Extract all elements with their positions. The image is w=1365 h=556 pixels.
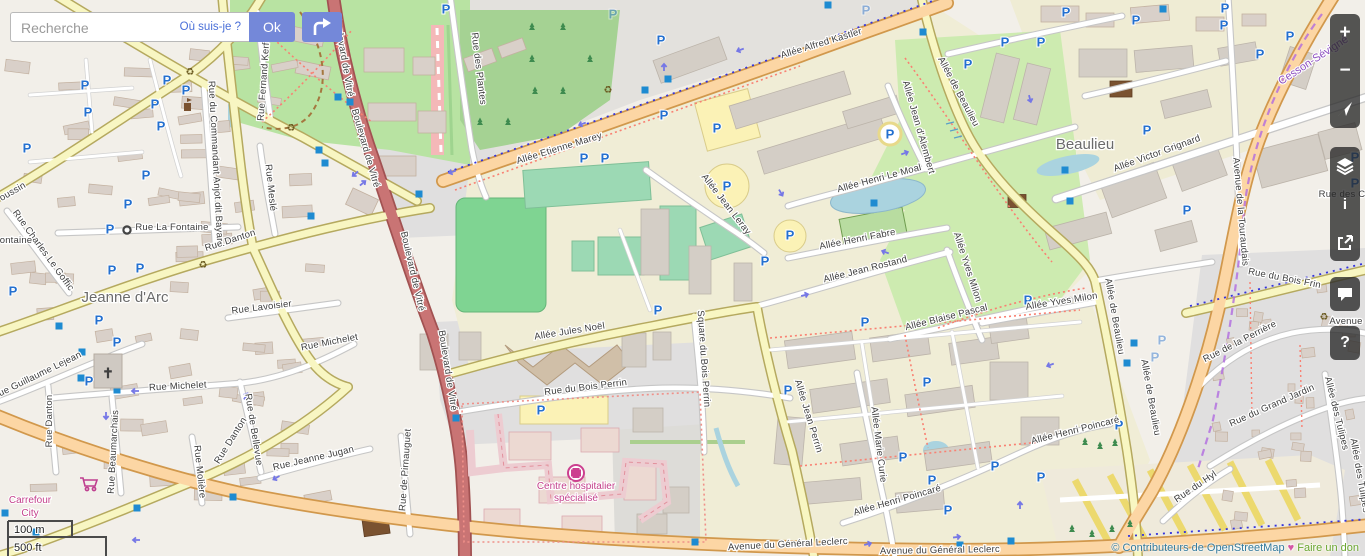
map-tools: i: [1330, 147, 1360, 261]
parking-icon: P: [136, 261, 145, 276]
parking-icon: P: [9, 284, 18, 299]
parking-icon: P: [182, 83, 191, 98]
parking-icon-faded: P: [1158, 333, 1167, 348]
place-label: Jeanne d'Arc: [81, 289, 169, 306]
parking-icon: P: [964, 57, 973, 72]
parking-icon: P: [84, 105, 93, 120]
search-submit-button[interactable]: Ok: [249, 12, 295, 42]
parking-icon: P: [886, 127, 895, 142]
parking-icon: P: [537, 403, 546, 418]
blue-square-marker: [453, 415, 460, 422]
blue-square-marker: [347, 99, 354, 106]
blue-square-marker: [1160, 6, 1167, 13]
poi-label: Carrefour: [9, 495, 52, 506]
parking-icon: P: [1143, 123, 1152, 138]
search-input[interactable]: [19, 13, 173, 43]
parking-icon: P: [1220, 18, 1229, 33]
recycling-icon: ♻: [199, 260, 208, 271]
recycling-icon: ♻: [186, 67, 195, 78]
map-key-button[interactable]: i: [1330, 185, 1360, 223]
poi-label: spécialisé: [554, 493, 598, 504]
parking-icon: P: [106, 222, 115, 237]
place-label: Beaulieu: [1056, 136, 1114, 153]
query-control: ?: [1330, 326, 1360, 360]
blue-square-marker: [1124, 360, 1131, 367]
directions-button[interactable]: [302, 12, 342, 42]
parking-icon: P: [23, 141, 32, 156]
parking-icon: P: [163, 73, 172, 88]
parking-icon: P: [786, 228, 795, 243]
note-control: [1330, 277, 1360, 311]
parking-icon: P: [157, 119, 166, 134]
parking-icon: P: [151, 97, 160, 112]
parking-icon: P: [1062, 5, 1071, 20]
parking-icon: P: [108, 263, 117, 278]
street-label: Avenue du Général Leclerc: [880, 544, 1000, 556]
parking-icon: P: [991, 459, 1000, 474]
recycling-icon: ♻: [287, 123, 296, 134]
parking-icon: P: [657, 33, 666, 48]
blue-square-marker: [642, 87, 649, 94]
blue-square-marker: [56, 323, 63, 330]
note-bubble-icon: [1337, 287, 1353, 302]
parking-icon: P: [124, 197, 133, 212]
parking-icon: P: [660, 108, 669, 123]
parking-icon: P: [944, 503, 953, 518]
layers-button[interactable]: [1330, 147, 1360, 185]
scale-imperial: 500 ft: [14, 542, 42, 554]
blue-square-marker: [1067, 198, 1074, 205]
parking-icon: P: [1037, 470, 1046, 485]
parking-icon: P: [923, 375, 932, 390]
blue-square-marker: [920, 29, 927, 36]
parking-icon: P: [580, 151, 589, 166]
parking-icon: P: [861, 315, 870, 330]
parking-icon: P: [1132, 13, 1141, 28]
parking-icon: P: [85, 374, 94, 389]
scale-metric: 100 m: [14, 524, 45, 536]
heart-icon: ♥: [1288, 542, 1295, 554]
where-am-i-link[interactable]: Où suis-je ?: [180, 21, 241, 33]
blue-square-marker: [322, 160, 329, 167]
blue-square-marker: [335, 94, 342, 101]
parking-icon: P: [1256, 47, 1265, 62]
blue-square-marker: [825, 2, 832, 9]
hospital-icon: [568, 465, 584, 481]
parking-icon: P: [899, 450, 908, 465]
zoom-in-button[interactable]: +: [1330, 14, 1360, 52]
parking-icon: P: [1221, 1, 1230, 16]
parking-icon: P: [1037, 35, 1046, 50]
parking-icon-faded: P: [862, 3, 871, 18]
parking-icon-faded: P: [1151, 350, 1160, 365]
locate-arrow-icon: [1337, 101, 1353, 117]
add-note-button[interactable]: [1330, 277, 1360, 311]
blue-square-marker: [1062, 167, 1069, 174]
search-bar: Où suis-je ? Ok: [10, 12, 342, 42]
share-icon: [1337, 234, 1354, 251]
map-application: ✝ ♻♻♻♻♻ PPPPPPPPPPPPPPPPPPPPPPPPPPPPPPPP…: [0, 0, 1365, 556]
parking-icon: P: [1183, 203, 1192, 218]
parking-icon: P: [113, 335, 122, 350]
blue-square-marker: [230, 494, 237, 501]
blue-square-marker: [134, 505, 141, 512]
blue-square-marker: [665, 76, 672, 83]
parking-icon: P: [81, 78, 90, 93]
attribution-link[interactable]: © Contributeurs de OpenStreetMap: [1111, 542, 1284, 554]
blue-square-marker: [78, 375, 85, 382]
blue-square-marker: [692, 539, 699, 546]
parking-icon: P: [713, 121, 722, 136]
zoom-out-button[interactable]: −: [1330, 52, 1360, 90]
map-canvas[interactable]: ✝ ♻♻♻♻♻ PPPPPPPPPPPPPPPPPPPPPPPPPPPPPPPP…: [0, 0, 1365, 556]
blue-square-marker: [416, 191, 423, 198]
search-box: Où suis-je ?: [10, 12, 249, 42]
poi-label: Centre hospitalier: [537, 481, 616, 492]
directions-icon: [311, 17, 333, 37]
street-label: Rue Danton: [44, 395, 55, 448]
parking-icon: P: [761, 254, 770, 269]
zoom-controls: + −: [1330, 14, 1360, 128]
blue-square-marker: [308, 213, 315, 220]
share-button[interactable]: [1330, 223, 1360, 261]
blue-square-marker: [1131, 340, 1138, 347]
attribution: © Contributeurs de OpenStreetMap ♥ Faire…: [1111, 542, 1359, 554]
query-features-button[interactable]: ?: [1330, 326, 1360, 360]
layers-icon: [1336, 157, 1354, 175]
recycling-icon: ♻: [1320, 312, 1329, 323]
street-label: Rue La Fontaine: [135, 222, 208, 233]
recycling-icon: ♻: [604, 85, 613, 96]
parking-icon: P: [1286, 29, 1295, 44]
parking-icon: P: [784, 383, 793, 398]
parking-icon: P: [142, 168, 151, 183]
geolocate-button[interactable]: [1330, 90, 1360, 128]
parking-icon: P: [442, 2, 451, 17]
blue-square-marker: [871, 200, 878, 207]
donate-link[interactable]: Faire un don: [1297, 542, 1359, 554]
parking-icon: P: [1001, 35, 1010, 50]
blue-square-marker: [316, 147, 323, 154]
blue-square-marker: [1008, 538, 1015, 545]
parking-icon: P: [654, 303, 663, 318]
parking-icon: P: [95, 313, 104, 328]
parking-icon: P: [601, 151, 610, 166]
parking-icon-faded: P: [609, 7, 618, 22]
street-label: ontaine: [0, 235, 32, 246]
church-icon: ✝: [102, 365, 114, 381]
parking-icon: P: [723, 179, 732, 194]
scale-bar: 100 m 500 ft: [6, 516, 126, 556]
